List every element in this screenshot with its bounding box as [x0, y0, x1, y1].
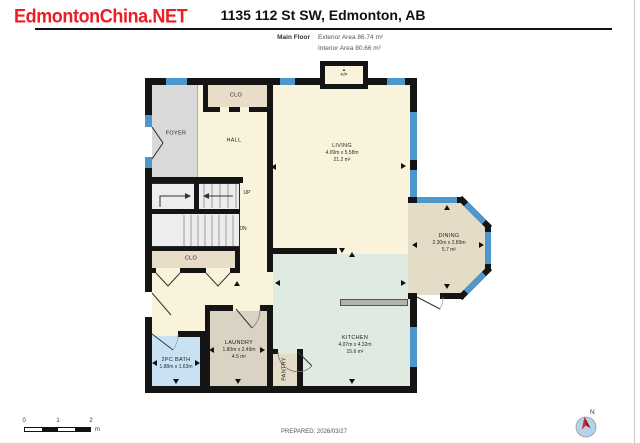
scale-tick-0: 0 — [22, 418, 25, 424]
laundry-label: LAUNDRY 1.80m x 2.49m 4.5 m² — [222, 340, 255, 360]
dining-room-label: DINING 2.30m x 2.89m 5.7 m² — [432, 233, 465, 253]
floor-label: Main Floor — [230, 34, 310, 41]
living-room-label: LIVING 4.09m x 5.58m 21.2 m² — [325, 143, 358, 163]
window — [387, 78, 405, 85]
entry-door-opening — [145, 127, 152, 157]
scale-tick-2: 2 — [89, 418, 92, 424]
wall — [249, 107, 268, 112]
hall-label: HALL — [227, 137, 242, 144]
window — [280, 78, 295, 85]
wall — [230, 268, 240, 273]
scale-bar — [24, 427, 91, 432]
closet-top-label: CLO — [230, 92, 242, 99]
wall — [145, 386, 417, 393]
closet-stairs-label: CLO — [185, 255, 197, 262]
dining-bay — [405, 195, 500, 320]
page-right-border — [634, 0, 635, 443]
window — [410, 112, 417, 160]
floor-plan-page: EdmontonChina.NET 1135 112 St SW, Edmont… — [0, 0, 640, 443]
wall — [147, 247, 240, 251]
scale-bar-segment — [75, 428, 92, 431]
wall — [297, 349, 303, 386]
scale-unit: m — [95, 427, 100, 433]
title-rule — [35, 28, 612, 30]
compass-n-label: N — [590, 409, 595, 416]
prepared-date: PREPARED: 2026/03/27 — [281, 429, 347, 435]
kitchen-label: KITCHEN 4.07m x 4.32m 15.6 m² — [338, 335, 371, 355]
wall — [267, 85, 273, 272]
wall — [270, 248, 337, 254]
compass: N — [570, 403, 610, 441]
wall — [229, 107, 240, 112]
door-arc — [440, 297, 443, 309]
interior-area: Interior Area 80.66 m² — [318, 45, 381, 52]
window — [145, 157, 152, 168]
foyer-label: FOYER — [166, 130, 186, 137]
exterior-area: Exterior Area 86.74 m² — [318, 34, 383, 41]
wall — [145, 331, 152, 337]
compass-circle — [576, 417, 596, 437]
fireplace-box: ▲ F/P — [320, 61, 368, 89]
page-title: 1135 112 St SW, Edmonton, AB — [123, 7, 523, 23]
wall — [268, 349, 278, 354]
side-door-opening — [145, 292, 152, 317]
wall — [180, 268, 206, 273]
bath-label: 2PC BATH 1.88m x 1.63m — [159, 357, 192, 371]
wall — [145, 268, 156, 273]
window — [410, 170, 417, 198]
scale-tick-1: 1 — [56, 418, 59, 424]
stairs-up-label: UP — [244, 190, 251, 197]
fireplace-label: F/P — [325, 72, 363, 78]
wall — [203, 107, 220, 112]
window — [410, 327, 417, 367]
scale-bar-segment — [42, 428, 59, 431]
wall — [205, 305, 210, 386]
stair-divider-wall — [147, 209, 240, 214]
stair-divider-wall — [194, 183, 199, 209]
window — [166, 78, 187, 85]
pantry-label: PANTRY — [281, 357, 288, 381]
foyer-hall-divider — [197, 85, 198, 177]
window — [145, 115, 152, 127]
wall — [267, 305, 273, 386]
stairs-down-label: DN — [239, 226, 246, 233]
door-leaf — [417, 297, 440, 309]
compass-needle — [580, 416, 591, 430]
kitchen-counter — [340, 299, 408, 306]
